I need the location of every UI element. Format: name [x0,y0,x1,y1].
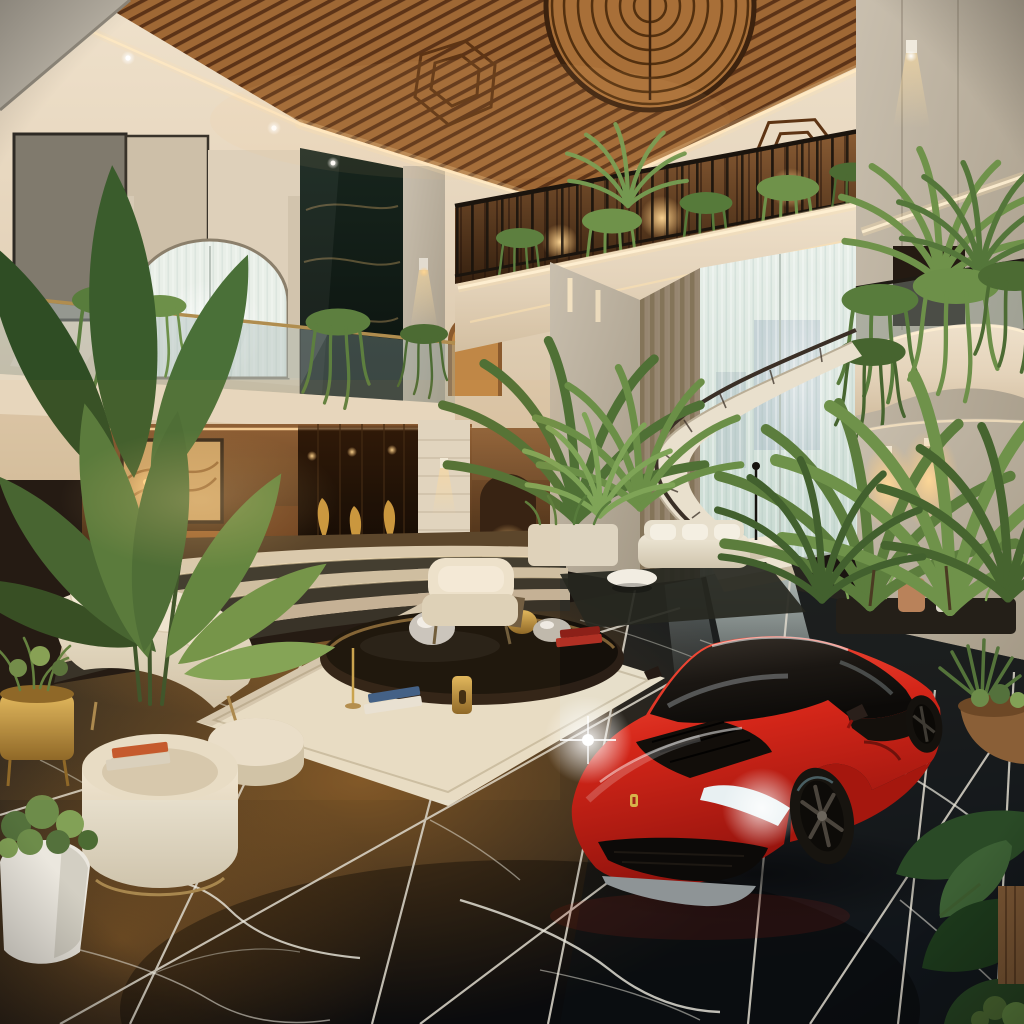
rendered-scene: Luxury villa lobby interior with red sup… [0,0,1024,1024]
villa-lobby-illustration [0,0,1024,1024]
lighting-overlays [0,0,1024,1024]
